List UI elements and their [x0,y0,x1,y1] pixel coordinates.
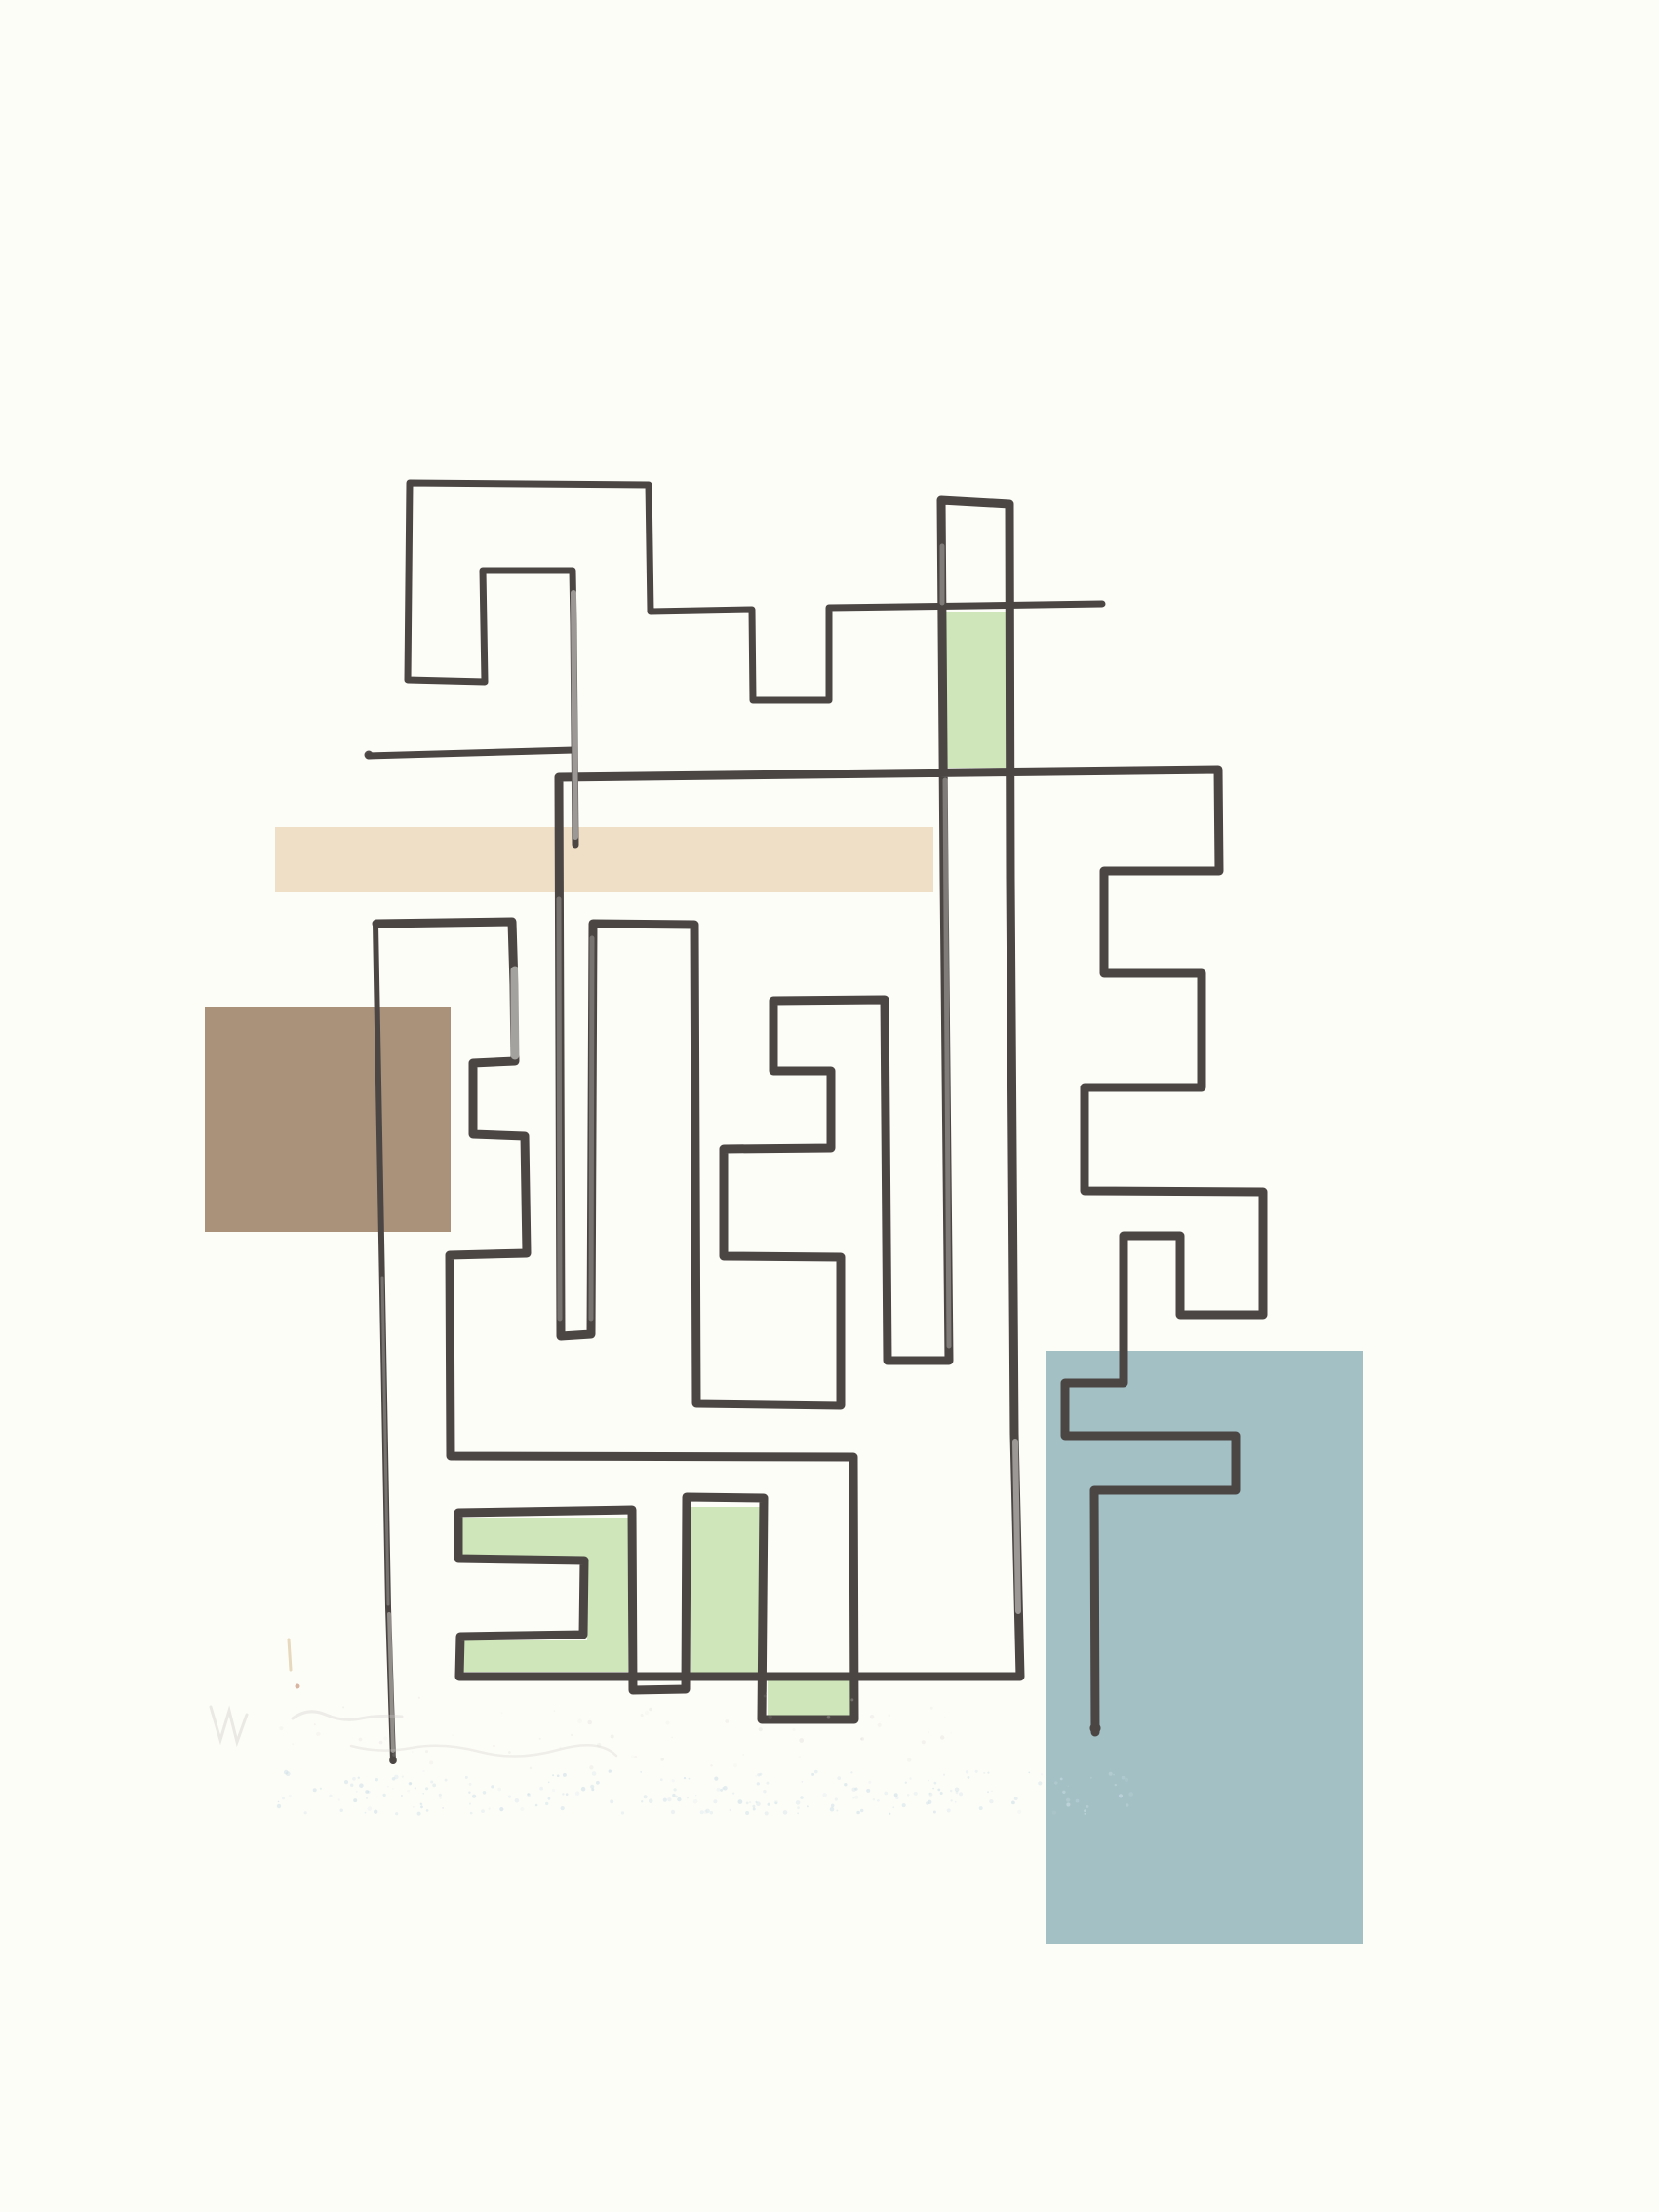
blue-speckle-band [641,1800,643,1802]
blue-speckle-band [766,1782,769,1785]
pencil-dust [559,1747,561,1749]
blue-speckle-band [955,1788,960,1793]
blue-speckle-band [822,1793,826,1797]
blue-speckle-band [800,1796,804,1799]
blue-speckle-band [329,1795,332,1797]
blue-speckle-band [860,1809,863,1812]
blue-speckle-band [753,1808,756,1811]
blue-speckle-band [755,1775,757,1777]
blue-speckle-band [987,1791,989,1793]
blue-speckle-band [382,1794,385,1797]
pencil-start-blob [365,751,374,760]
blue-speckle-band [732,1793,734,1795]
pencil-dust [611,1735,614,1739]
green-bottom-bar [768,1680,850,1718]
blue-speckle-band [928,1780,929,1782]
pencil-dust [878,1723,882,1727]
blue-speckle-band [402,1776,404,1778]
blue-speckle-band [854,1796,858,1799]
blue-speckle-band [1090,1777,1092,1779]
blue-speckle-band [472,1795,476,1798]
blue-speckle-band [763,1790,766,1793]
blue-speckle-band [720,1789,723,1792]
blue-speckle-band [468,1792,470,1794]
blue-speckle-band [907,1794,910,1797]
blue-speckle-band [738,1799,743,1804]
blue-speckle-band [392,1788,394,1790]
blue-speckle-band [835,1797,838,1800]
blue-speckle-band [796,1800,801,1805]
blue-speckle-band [304,1811,307,1814]
pencil-dust [359,1738,363,1742]
blue-speckle-band [968,1776,970,1779]
pencil-dust [798,1756,801,1758]
blue-speckle-band [757,1773,760,1776]
abstract-maze-drawing [0,0,1659,2212]
pencil-end-blob [389,1757,397,1764]
pencil-dust [634,1756,637,1758]
blue-speckle-band [989,1799,993,1803]
blue-speckle-band [856,1811,860,1815]
blue-speckle-band [671,1810,675,1814]
blue-speckle-band [1115,1784,1117,1786]
pencil-dust [764,1695,767,1698]
blue-speckle-band [313,1788,317,1792]
blue-speckle-band [675,1796,678,1798]
pencil-dust [766,1692,768,1694]
blue-speckle-band [850,1771,852,1773]
pencil-dust [412,1751,414,1753]
pencil-dust [930,1707,933,1710]
blue-speckle-band [395,1812,398,1815]
blue-speckle-band [746,1802,749,1805]
pencil-dust [316,1732,320,1736]
blue-speckle-band [432,1784,436,1788]
blue-speckle-band [814,1770,818,1774]
pencil-dust [577,1718,582,1723]
blue-speckle-band [590,1785,594,1789]
blue-speckle-band [684,1777,686,1779]
blue-speckle-band [1128,1792,1133,1797]
blue-speckle-band [401,1795,403,1797]
blue-speckle-band [693,1799,698,1804]
blue-speckle-band [987,1772,989,1774]
blue-speckle-band [1113,1774,1115,1776]
pencil-dust [928,1731,929,1733]
pencil-dust [944,1717,946,1718]
blue-speckle-band [1011,1801,1015,1805]
pencil-dust [725,1719,729,1723]
faint-scribble [293,1712,402,1720]
blue-speckle-band [757,1782,760,1785]
blue-speckle-band [975,1770,978,1773]
blue-speckle-band [765,1811,769,1815]
blue-speckle-band [465,1776,468,1779]
blue-speckle-band [844,1783,847,1786]
pencil-dust [666,1721,670,1725]
pencil-dust [649,1708,652,1712]
blue-speckle-band [407,1790,410,1793]
blue-speckle-band [689,1778,691,1780]
pencil-dust [452,1734,454,1736]
blue-speckle-band [575,1791,580,1796]
blue-speckle-band [884,1792,888,1796]
pencil-dust [631,1755,634,1758]
blue-speckle-band [1054,1781,1057,1784]
blue-speckle-band [520,1807,524,1811]
blue-speckle-band [672,1794,675,1797]
blue-speckle-band [889,1813,890,1815]
blue-speckle-band [277,1804,281,1808]
pencil-dust [597,1743,601,1747]
blue-speckle-band [499,1807,503,1811]
blue-speckle-band [797,1812,799,1814]
blue-speckle-band [1038,1781,1042,1785]
blue-speckle-band [802,1781,804,1783]
pencil-dust [860,1738,862,1740]
blue-speckle-band [677,1797,681,1801]
fade-segment [1015,1442,1018,1611]
blue-speckle-band [807,1806,809,1808]
blue-speckle-band [278,1801,280,1803]
blue-speckle-band [561,1806,565,1810]
blue-speckle-band [1085,1813,1086,1815]
blue-speckle-band [489,1808,491,1810]
blue-speckle-band [914,1792,918,1796]
pencil-end-blob [1090,1723,1101,1734]
blue-speckle-band [1041,1773,1043,1775]
blue-speckle-band [979,1806,983,1810]
pencil-dust [827,1716,831,1719]
pencil-dust [742,1754,744,1756]
blue-speckle-band [926,1801,929,1805]
blue-speckle-band [483,1791,487,1795]
blue-speckle-band [1086,1805,1089,1808]
blue-speckle-band [289,1795,292,1797]
blue-speckle-band [674,1788,677,1791]
pencil-dust [710,1764,712,1766]
pencil-dust [940,1735,944,1739]
blue-speckle-band [877,1799,880,1802]
blue-speckle-band [687,1797,689,1798]
green-c-shape [456,1518,628,1672]
blue-speckle-band [566,1793,569,1796]
blue-speckle-band [374,1810,377,1814]
blue-speckle-band [557,1774,560,1777]
blue-speckle-band [1062,1791,1065,1794]
blue-speckle-band [350,1784,353,1787]
blue-speckle-band [660,1778,663,1781]
blue-speckle-band [282,1797,285,1799]
blue-speckle-band [909,1777,911,1779]
blue-speckle-band [836,1810,838,1812]
blue-speckle-band [783,1810,788,1815]
blue-speckle-band [937,1789,940,1792]
blue-speckle-band [470,1812,473,1815]
blue-speckle-band [338,1798,340,1800]
blue-speckle-band [1125,1778,1128,1782]
pencil-dust [425,1750,428,1753]
pencil-dust [793,1728,796,1731]
blue-speckle-band [352,1777,356,1781]
blue-speckle-band [366,1797,368,1799]
blue-speckle-band [714,1777,718,1781]
blue-speckle-band [644,1795,648,1798]
blue-speckle-band [491,1785,494,1788]
blue-speckle-band [430,1781,433,1784]
blue-speckle-band [367,1806,372,1811]
blue-speckle-band [527,1793,531,1797]
pencil-dust [554,1710,556,1712]
blue-speckle-band [409,1782,412,1785]
blue-speckle-band [320,1788,322,1790]
blue-speckle-band [947,1808,951,1812]
pencil-dust [571,1734,573,1736]
blue-speckle-band [365,1790,369,1794]
pencil-dust [587,1720,592,1725]
blue-speckle-band [445,1779,448,1782]
brown-square [205,1007,451,1232]
blue-speckle-band [768,1803,770,1806]
blue-speckle-band [959,1792,963,1796]
blue-speckle-band [905,1782,907,1784]
blue-speckle-band [439,1797,442,1800]
blue-speckle-band [1109,1772,1113,1776]
blue-speckle-band [1028,1772,1030,1774]
faint-scribble [211,1707,247,1742]
blue-speckle-band [621,1811,624,1814]
blue-speckle-band [481,1809,485,1813]
blue-speckle-band [552,1774,554,1776]
blue-speckle-band [950,1790,953,1793]
blue-speckle-band [365,1812,367,1814]
pencil-dust [759,1727,763,1731]
blue-speckle-band [1119,1794,1123,1797]
blue-speckle-band [837,1776,841,1780]
blue-speckle-band [866,1789,870,1793]
blue-speckle-band [934,1782,937,1785]
blue-speckle-band [1076,1799,1080,1803]
blue-speckle-band [539,1787,543,1791]
blue-speckle-band [1066,1802,1070,1806]
fade-segment [559,899,560,1319]
blue-speckle-band [991,1791,993,1793]
artwork-page [0,0,1659,2212]
blue-speckle-band [943,1774,945,1776]
blue-speckle-band [1068,1785,1070,1787]
blue-speckle-band [672,1779,675,1782]
blue-speckle-band [284,1770,289,1775]
blue-speckle-band [548,1797,551,1800]
blue-speckle-band [359,1783,364,1788]
green-middle-rect [691,1507,761,1674]
blue-speckle-band [1126,1803,1129,1807]
blue-speckle-band [592,1771,597,1776]
pencil-dust [907,1758,911,1761]
underline-stroke [369,750,573,756]
blue-speckle-band [983,1772,985,1774]
pencil-dust [392,1753,396,1757]
blue-speckle-band [426,1809,429,1812]
pencil-dust [493,1745,495,1748]
pencil-dust [418,1697,420,1699]
blue-speckle-band [1084,1809,1086,1812]
blue-speckle-band [940,1792,943,1795]
beige-scratch [289,1639,291,1670]
blue-speckle-band [1052,1811,1056,1815]
pencil-dust [645,1711,649,1715]
pencil-dust [799,1738,804,1743]
pencil-dust [733,1763,737,1767]
blue-speckle-band [420,1806,423,1809]
blue-speckle-band [340,1809,343,1812]
blue-speckle-band [831,1804,835,1808]
pencil-dust [589,1765,593,1769]
blue-speckle-band [902,1803,906,1807]
blue-speckle-band [508,1796,511,1798]
blue-speckle-band [442,1807,444,1809]
rust-speck [296,1684,300,1689]
pencil-dust [314,1723,316,1725]
blue-speckle-band [797,1806,800,1809]
blue-speckle-band [415,1787,416,1789]
blue-speckle-band [955,1801,957,1803]
pencil-dust [870,1715,875,1719]
blue-speckle-band [422,1793,424,1795]
blue-speckle-band [392,1777,396,1781]
blue-speckle-band [562,1793,564,1795]
blue-speckle-band [663,1798,667,1802]
blue-speckle-band [469,1783,472,1786]
blue-speckle-band [811,1773,814,1776]
blue-speckle-band [710,1811,714,1815]
pencil-dust [950,1732,952,1734]
blue-speckle-band [649,1798,653,1803]
blue-speckle-band [425,1787,428,1790]
tan-bar [275,827,933,892]
blue-speckle-band [868,1781,871,1784]
blue-speckle-band [667,1797,671,1801]
blue-speckle-band [535,1804,538,1807]
blue-speckle-band [420,1803,423,1806]
blue-speckle-band [552,1789,556,1793]
blue-speckle-band [548,1782,550,1784]
blue-speckle-band [356,1791,358,1793]
pencil-dust [889,1714,891,1717]
blue-speckle-band [375,1778,378,1781]
pencil-dust [508,1751,511,1754]
blue-speckle-band [730,1809,731,1811]
blue-speckle-band [830,1807,835,1812]
fade-segment [573,593,575,837]
blue-speckle-band [723,1786,728,1791]
blue-speckle-band [1014,1797,1018,1800]
blue-speckle-band [745,1811,749,1815]
pencil-dust [922,1740,926,1744]
blue-speckle-band [749,1801,751,1803]
blue-speckle-band [439,1794,442,1797]
blue-speckle-band [1017,1810,1021,1814]
blue-speckle-band [851,1788,855,1792]
blue-speckle-band [422,1770,424,1772]
blue-speckle-band [717,1788,721,1792]
blue-speckle-band [966,1770,968,1773]
blue-speckle-band [545,1802,548,1805]
blue-speckle-band [704,1810,708,1814]
pencil-dust [671,1737,673,1739]
blue-speckle-band [950,1799,952,1801]
blue-speckle-band [515,1798,520,1803]
pencil-dust [342,1706,344,1708]
blue-speckle-band [892,1806,894,1808]
pencil-dust [530,1767,533,1770]
fade-segment [591,938,592,1319]
pencil-dust [539,1738,541,1740]
blue-speckle-band [596,1781,600,1785]
pencil-dust [383,1736,387,1740]
blue-speckle-band [413,1806,415,1808]
blue-speckle-band [387,1786,389,1788]
blue-speckle-band [609,1769,612,1772]
pencil-dust [501,1712,503,1714]
blue-speckle-band [344,1780,348,1784]
blue-speckle-band [933,1811,936,1814]
blue-speckle-band [873,1798,876,1801]
blue-speckle-band [756,1801,761,1806]
blue-speckle-band [497,1788,501,1792]
blue-speckle-band [1122,1776,1126,1780]
blue-speckle-band [695,1795,697,1797]
blue-speckle-band [1060,1778,1063,1781]
pencil-dust [768,1716,772,1720]
pencil-dust [379,1741,383,1745]
blue-speckle-band [713,1799,717,1803]
pencil-dust [641,1714,644,1717]
blue-speckle-band [417,1812,421,1816]
blue-speckle-band [932,1788,934,1790]
blue-speckle-band [1066,1798,1070,1802]
blue-speckle-band [752,1805,755,1808]
blue-speckle-band [353,1798,357,1802]
pencil-dust [660,1758,664,1761]
pencil-dust [279,1726,283,1730]
blue-speckle-band [563,1773,567,1777]
pencil-dust [850,1698,853,1701]
blue-speckle-band [469,1802,471,1804]
blue-speckle-band [700,1810,704,1814]
green-top-rect [942,612,1007,768]
blue-speckle-band [610,1799,613,1803]
blue-speckle-band [581,1787,586,1792]
blue-speckle-band [928,1793,932,1797]
blue-speckle-band [895,1797,899,1800]
blue-speckle-band [852,1797,854,1799]
pencil-dust [292,1743,294,1745]
pencil-dust [429,1760,433,1764]
blue-speckle-band [358,1777,360,1779]
blue-speckle-band [640,1771,642,1773]
blue-speckle-band [774,1801,777,1804]
